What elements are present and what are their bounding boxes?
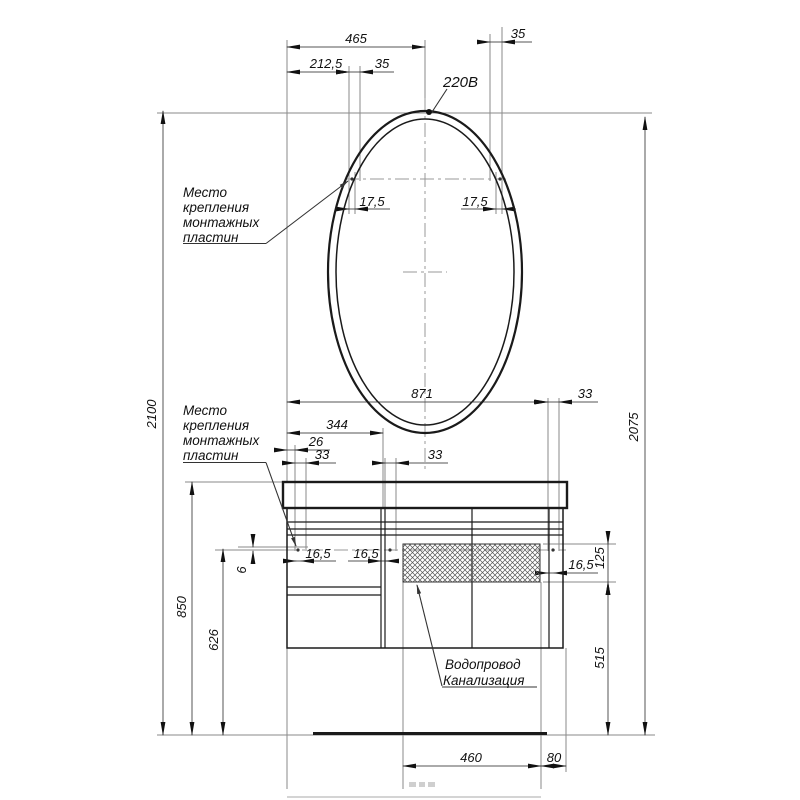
dim-33-right: 33 [578,386,593,401]
note-line: Место [183,403,227,418]
note-socket-220v: 220В [442,74,478,91]
dim-16-5-c: 16,5 [568,557,594,572]
dim-2075: 2075 [626,412,641,443]
dim-6: 6 [234,566,249,574]
dim-212-5: 212,5 [309,56,343,71]
note-line: Место [183,185,227,200]
dim-35-left: 35 [375,56,390,71]
dim-465: 465 [345,31,367,46]
dim-16-5-a: 16,5 [305,546,331,561]
dim-344: 344 [326,417,348,432]
note-line: пластин [183,230,239,245]
power-socket-point [426,109,432,115]
dim-80: 80 [547,750,562,765]
extension-lines [157,27,655,789]
vanity-installation-drawing: 465 212,5 35 35 17,5 17,5 871 33 344 26 … [0,0,800,800]
countertop [283,482,567,508]
dim-33-mid: 33 [428,447,443,462]
dim-125: 125 [592,546,607,568]
dim-626: 626 [206,628,221,650]
note-line: крепления [183,418,249,433]
dim-17-5-left: 17,5 [359,194,385,209]
dim-16-5-b: 16,5 [353,546,379,561]
dim-33-left: 33 [315,447,330,462]
note-line: крепления [183,200,249,215]
dim-17-5-right: 17,5 [462,194,488,209]
note-utilities: Водопровод Канализация [443,657,524,688]
note-line: монтажных [183,215,260,230]
dim-2100: 2100 [144,399,159,430]
note-sewage: Канализация [443,673,524,688]
dim-871: 871 [411,386,433,401]
dim-460: 460 [460,750,482,765]
utilities-access-hatch [403,544,540,582]
note-water-supply: Водопровод [445,657,521,672]
note-mount-plates-upper: Место крепления монтажных пластин [183,185,260,245]
dim-515: 515 [592,646,607,668]
clipped-bottom-dimension [409,782,435,787]
note-line: пластин [183,448,239,463]
dim-850: 850 [174,595,189,617]
note-mount-plates-lower: Место крепления монтажных пластин [183,403,260,463]
dim-35-right: 35 [511,26,526,41]
note-line: монтажных [183,433,260,448]
